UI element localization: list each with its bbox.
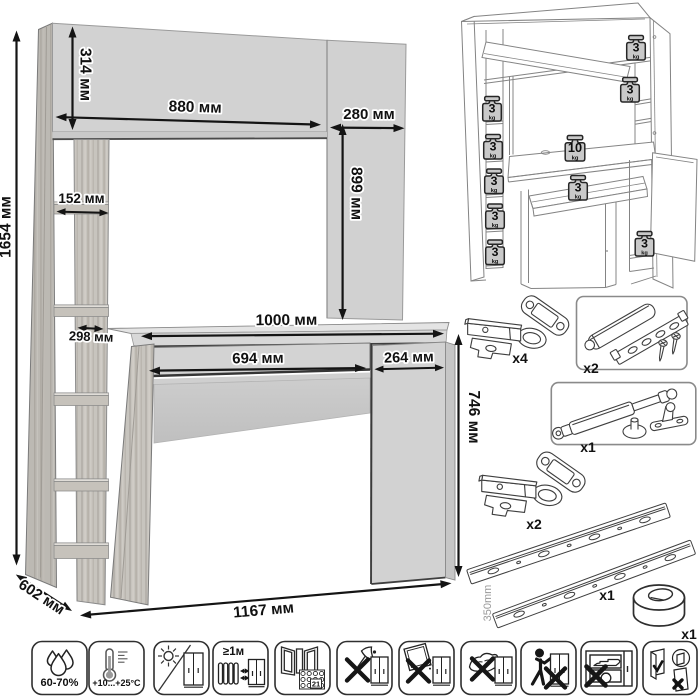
svg-text:≥1м: ≥1м	[223, 646, 244, 658]
svg-text:kg: kg	[633, 54, 640, 60]
svg-text:x2: x2	[583, 360, 599, 376]
svg-text:kg: kg	[491, 188, 498, 194]
svg-text:kg: kg	[490, 153, 497, 159]
svg-text:3: 3	[641, 237, 648, 251]
svg-text:746 мм: 746 мм	[465, 390, 482, 443]
svg-text:3: 3	[633, 41, 640, 55]
svg-text:x1: x1	[599, 587, 615, 603]
svg-text:kg: kg	[627, 96, 634, 102]
svg-text:kg: kg	[572, 155, 579, 161]
svg-text:kg: kg	[492, 223, 499, 229]
svg-text:kg: kg	[641, 250, 648, 256]
svg-text:1654 мм: 1654 мм	[0, 196, 15, 258]
svg-text:3: 3	[489, 102, 496, 116]
svg-text:298 мм: 298 мм	[69, 328, 114, 345]
svg-text:694 мм: 694 мм	[232, 350, 284, 368]
svg-text:280 мм: 280 мм	[343, 106, 394, 123]
svg-text:21: 21	[312, 680, 320, 689]
svg-text:10: 10	[568, 140, 582, 155]
svg-text:314 мм: 314 мм	[77, 48, 94, 101]
svg-text:x2: x2	[526, 516, 542, 532]
svg-text:3: 3	[627, 83, 634, 97]
svg-text:x1: x1	[580, 439, 596, 455]
svg-text:3: 3	[575, 181, 582, 195]
svg-text:3: 3	[490, 140, 497, 154]
svg-text:350mm: 350mm	[482, 585, 494, 622]
svg-text:x1: x1	[681, 626, 697, 642]
svg-text:60-70%: 60-70%	[41, 677, 79, 689]
svg-text:264 мм: 264 мм	[384, 349, 434, 366]
svg-text:3: 3	[492, 209, 499, 223]
svg-text:899 мм: 899 мм	[348, 167, 365, 220]
svg-text:x4: x4	[512, 350, 528, 366]
svg-text:880 мм: 880 мм	[168, 98, 222, 117]
svg-text:kg: kg	[492, 259, 499, 265]
svg-text:1000 мм: 1000 мм	[256, 312, 318, 330]
svg-text:kg: kg	[575, 194, 582, 200]
svg-text:3: 3	[491, 174, 498, 188]
svg-text:3: 3	[492, 245, 499, 259]
svg-text:kg: kg	[489, 115, 496, 121]
svg-text:+10...+25°C: +10...+25°C	[92, 678, 141, 688]
svg-text:152 мм: 152 мм	[58, 191, 104, 206]
